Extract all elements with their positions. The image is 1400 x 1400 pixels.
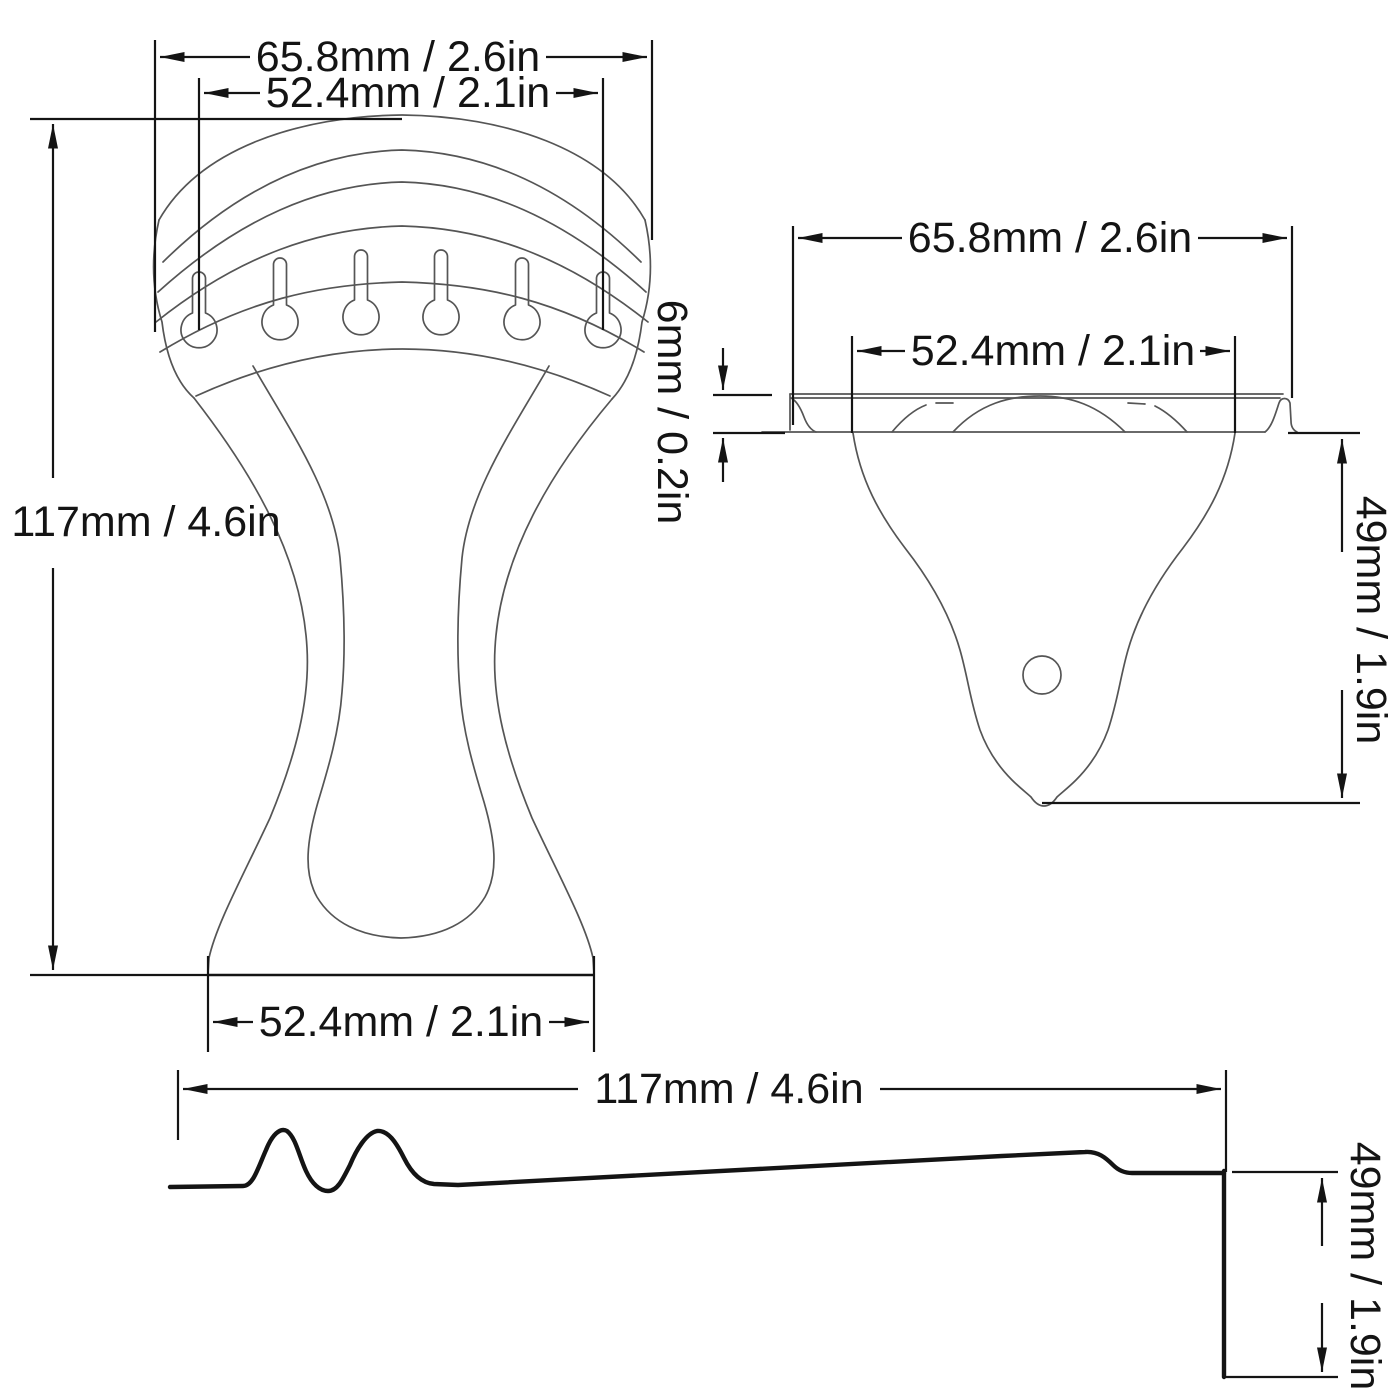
side-length-label: 117mm / 4.6in	[594, 1065, 863, 1113]
plate-overall-width-label: 65.8mm / 2.6in	[908, 214, 1192, 262]
front-string-span-label: 52.4mm / 2.1in	[266, 69, 550, 117]
string-slot-3	[343, 250, 379, 335]
head-arc-3	[158, 182, 646, 292]
head-top-arc	[159, 115, 645, 220]
plate-right-wing-line	[1128, 403, 1187, 432]
plate-width-label: 52.4mm / 2.1in	[911, 327, 1195, 375]
plate-depth-label: 49mm / 1.9in	[1347, 496, 1395, 745]
plate-thickness-label: 6mm / 0.2in	[648, 300, 696, 525]
head-arc-4	[156, 226, 648, 322]
right-arm-outer-edge	[495, 399, 612, 974]
mounting-hole	[1023, 656, 1061, 694]
front-base-width-label: 52.4mm / 2.1in	[259, 998, 543, 1046]
head-arc-5	[160, 282, 644, 352]
plate-center-dome	[953, 396, 1125, 432]
central-cutout	[253, 366, 549, 938]
side-profile-view: 117mm / 4.6in 49mm / 1.9in	[170, 1065, 1389, 1390]
left-arm-outer-edge	[194, 398, 307, 974]
side-height-label: 49mm / 1.9in	[1341, 1142, 1389, 1391]
head-bottom-arc	[196, 349, 610, 396]
plate-right-end-lip	[1265, 399, 1297, 433]
mounting-plate-view: 65.8mm / 2.6in 52.4mm / 2.1in 6mm / 0.2i…	[648, 214, 1395, 806]
drawing-canvas: 65.8mm / 2.6in 52.4mm / 2.1in 117mm / 4.…	[0, 0, 1400, 1400]
string-slot-4	[423, 250, 459, 335]
bell-plate-outline	[853, 433, 1235, 806]
front-view: 65.8mm / 2.6in 52.4mm / 2.1in 117mm / 4.…	[11, 33, 652, 1052]
head-arc-2	[163, 150, 641, 262]
plate-left-wing-line	[892, 403, 953, 432]
tailpiece-dimension-drawing: 65.8mm / 2.6in 52.4mm / 2.1in 117mm / 4.…	[0, 0, 1400, 1400]
front-height-label: 117mm / 4.6in	[11, 498, 280, 546]
side-profile-bar	[170, 1130, 1224, 1191]
